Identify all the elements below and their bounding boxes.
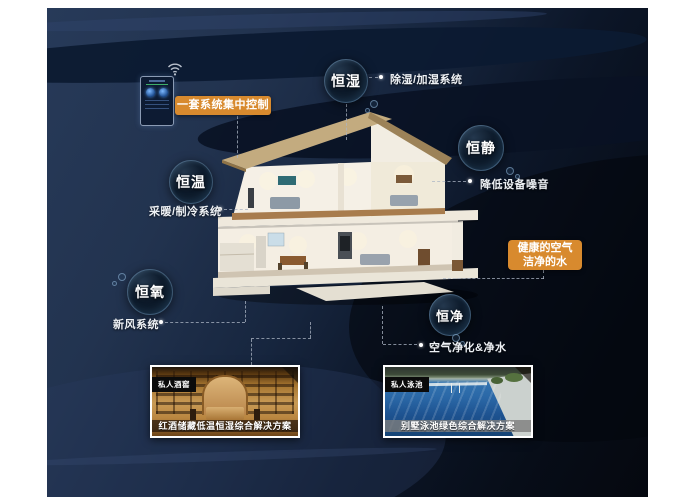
phone-dial-group <box>141 88 173 97</box>
healthy-air-water-label: 健康的空气 洁净的水 <box>508 240 582 270</box>
phone-screen-row <box>145 104 169 105</box>
highlight-line2: 洁净的水 <box>508 255 582 269</box>
phone-screen-accent-line <box>146 84 168 85</box>
connector-line <box>251 338 311 339</box>
highlight-line1: 健康的空气 <box>508 241 582 255</box>
phone-dial-icon <box>159 88 168 97</box>
label-noise-reduction: 降低设备噪音 <box>480 176 549 192</box>
label-fresh-air-system: 新风系统 <box>113 316 159 332</box>
wifi-icon <box>167 62 183 81</box>
wine-counter <box>206 407 244 420</box>
phone-dial-icon <box>146 88 155 97</box>
label-heating-cooling: 采暖/制冷系统 <box>149 203 222 219</box>
connector-line <box>383 344 417 345</box>
dot-marker <box>419 343 423 347</box>
connector-line <box>237 116 238 158</box>
bubble-constant-quiet: 恒静 <box>458 125 504 171</box>
connector-line <box>382 306 383 344</box>
bubble-constant-clean: 恒净 <box>429 294 471 336</box>
pool-card-caption: 别墅泳池绿色综合解决方案 <box>385 420 531 432</box>
central-control-label: 一套系统集中控制 <box>175 96 271 115</box>
card-corner-ribbon <box>515 367 531 383</box>
mini-bubble-icon <box>112 281 117 286</box>
infographic-stage: 一套系统集中控制 健康的空气 洁净的水 恒湿 恒静 恒温 恒氧 恒净 除湿/加湿… <box>0 0 700 497</box>
pool-card-tag: 私人泳池 <box>385 377 429 392</box>
connector-line <box>165 322 245 323</box>
bubble-constant-temperature: 恒温 <box>169 160 213 204</box>
connector-line <box>251 339 252 365</box>
phone-app-mockup <box>140 76 174 126</box>
wine-stool <box>190 409 196 420</box>
plant-icon <box>491 377 503 384</box>
phone-screen-title-bar <box>149 80 165 82</box>
phone-screen-row <box>145 108 169 109</box>
dot-marker <box>159 320 163 324</box>
dot-marker <box>379 75 383 79</box>
connector-line <box>346 104 347 140</box>
pool-card: 私人泳池 别墅泳池绿色综合解决方案 <box>383 365 533 438</box>
bubble-constant-humidity: 恒湿 <box>324 59 368 103</box>
mini-bubble-icon <box>370 100 378 108</box>
phone-screen-row <box>145 100 169 101</box>
wine-cellar-card: 私人酒窖 红酒储藏低温恒湿综合解决方案 <box>150 365 300 438</box>
label-dehumidify-system: 除湿/加湿系统 <box>390 71 463 87</box>
connector-line <box>369 77 378 78</box>
pool-ladder-icon <box>451 383 460 393</box>
mini-bubble-icon <box>506 167 514 175</box>
connector-line <box>224 209 248 210</box>
connector-line <box>245 301 246 322</box>
mini-bubble-icon <box>118 273 126 281</box>
wine-stool <box>254 409 260 420</box>
label-air-water-purification: 空气净化&净水 <box>429 339 506 355</box>
connector-line <box>432 181 466 182</box>
bubble-constant-oxygen: 恒氧 <box>127 269 173 315</box>
connector-line <box>443 278 544 279</box>
wine-card-caption: 红酒储藏低温恒湿综合解决方案 <box>152 420 298 432</box>
wine-card-tag: 私人酒窖 <box>152 377 196 392</box>
connector-line <box>310 322 311 338</box>
card-corner-ribbon <box>282 367 298 383</box>
mini-bubble-icon <box>365 108 370 113</box>
dot-marker <box>468 179 472 183</box>
